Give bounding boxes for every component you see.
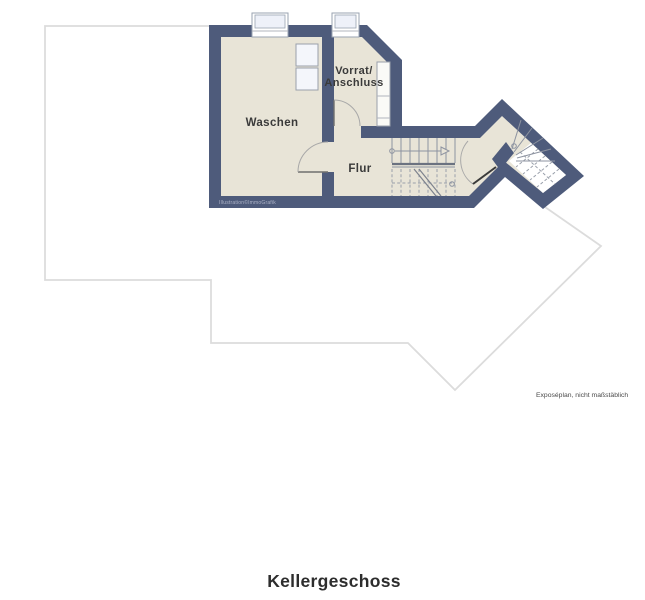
room-label-vorrat-line1: Vorrat/ bbox=[335, 65, 372, 77]
scale-disclaimer: Exposéplan, nicht maßstäblich bbox=[536, 392, 628, 399]
floor-title: Kellergeschoss bbox=[267, 571, 401, 591]
window-north-right bbox=[332, 13, 359, 37]
connection-unit-symbol bbox=[377, 62, 390, 126]
window-north-left bbox=[252, 13, 288, 37]
illustrator-watermark: Illustration©ImmoGrafik bbox=[219, 199, 276, 206]
room-label-flur: Flur bbox=[348, 163, 371, 175]
floorplan-canvas: Waschen Vorrat/ Anschluss Flur Illustrat… bbox=[0, 0, 645, 600]
room-label-vorrat-line2: Anschluss bbox=[324, 77, 383, 89]
room-label-waschen: Waschen bbox=[246, 117, 299, 129]
